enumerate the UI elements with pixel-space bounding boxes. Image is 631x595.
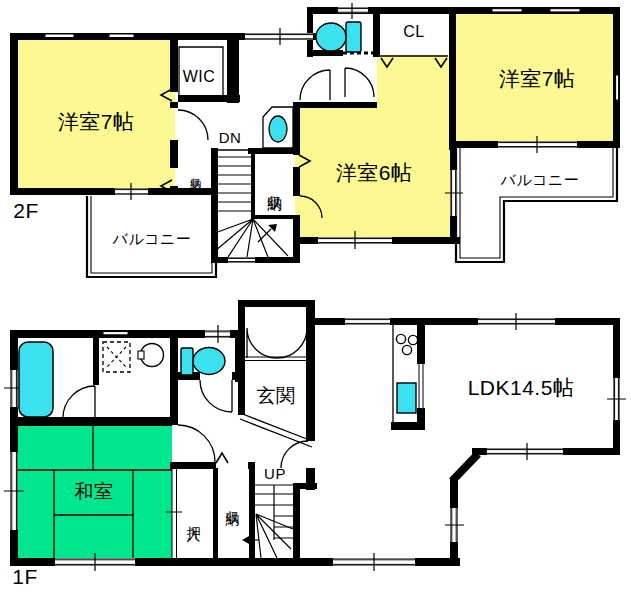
room-label-balcony-east: バルコニー (501, 172, 580, 187)
stairs-2f-winder (215, 219, 288, 257)
door-bedroom-west (178, 110, 208, 140)
room-label-bedroom-east: 洋室7帖 (499, 68, 576, 89)
bathtub-icon (19, 342, 53, 417)
room-label-wic: WIC (183, 69, 216, 85)
room-label-entrance: 玄関 (257, 386, 296, 405)
room-label-cl: CL (403, 24, 424, 40)
door-entrance-left (247, 328, 277, 358)
chevron-storage-1f-icon (216, 453, 228, 463)
floor-2f (10, 3, 620, 277)
floor-1f (4, 300, 626, 571)
door-bathroom (63, 386, 95, 418)
room-label-storage-1f: 収納 (226, 500, 240, 502)
room-label-bedroom-west: 洋室7帖 (58, 111, 135, 132)
floor-tag-2f: 2F (13, 200, 39, 221)
room-label-storage-small: 収納 (190, 169, 201, 171)
door-entrance-right (277, 328, 307, 358)
stairs-label-up: UP (264, 466, 286, 481)
door-tatami-room (178, 425, 215, 462)
washbasin-2f-icon (263, 107, 293, 148)
room-label-bedroom-middle: 洋室6帖 (336, 162, 413, 183)
toilet-1f-icon (181, 348, 225, 376)
washing-machine-icon (103, 342, 130, 372)
door-toilet-1f (200, 380, 232, 412)
kitchen-sink-icon (397, 383, 416, 413)
toilet-2f-icon (316, 22, 361, 52)
stove-icon (396, 334, 417, 354)
door-hall-2f-left (300, 70, 330, 100)
washbasin-1f-icon (138, 344, 164, 367)
window-slots-1f (103, 332, 128, 335)
room-label-balcony-west: バルコニー (113, 231, 192, 246)
door-bedroom-east (345, 68, 374, 97)
floor-tag-1f: 1F (12, 566, 38, 587)
stairs-1f-arrowhead (242, 536, 249, 544)
room-label-ldk: LDK14.5帖 (468, 377, 575, 398)
room-label-oshiire: 押入 (187, 515, 201, 517)
balcony-east-outline (456, 148, 617, 262)
room-label-storage-east: 収納 (268, 183, 283, 185)
floor-plan-canvas: 洋室7帖 WIC CL 洋室7帖 洋室6帖 DN 収納 収納 バルコニー バルコ… (0, 0, 631, 595)
stairs-label-dn: DN (219, 130, 242, 145)
room-label-tatami: 和室 (75, 482, 114, 501)
wall-ldk-diagonal (452, 454, 478, 481)
kitchen-passthrough-lines (419, 364, 423, 408)
